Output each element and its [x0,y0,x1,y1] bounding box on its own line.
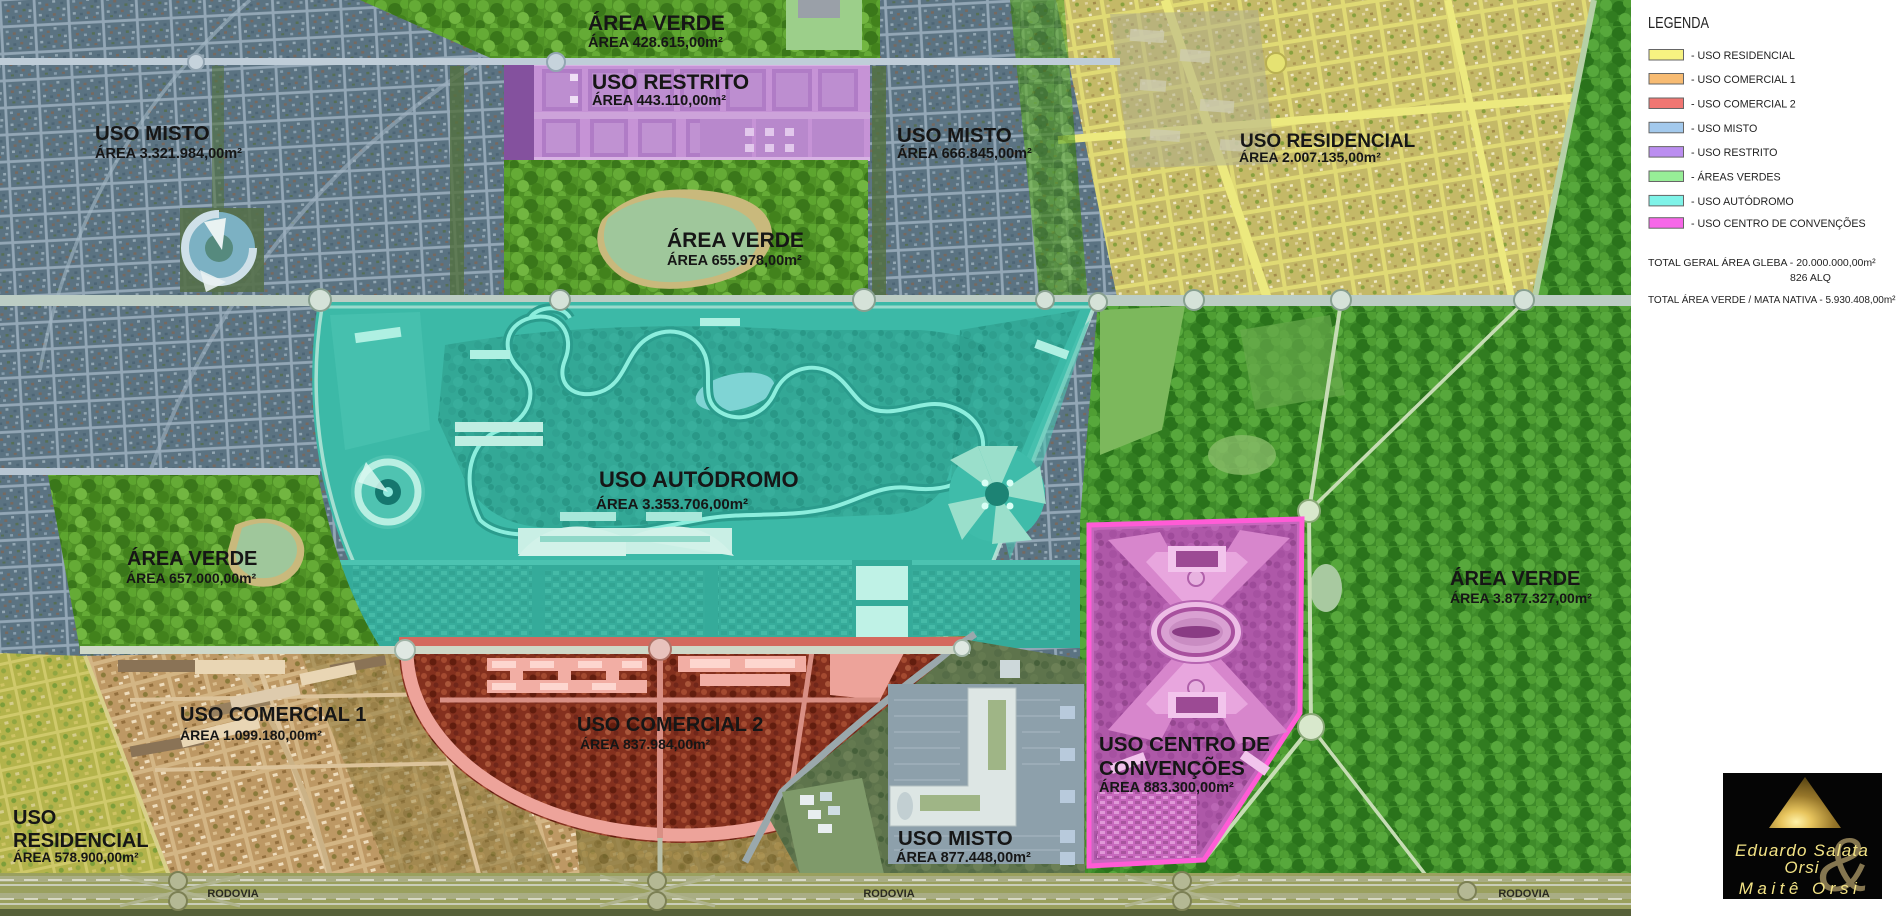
svg-text:ÁREA 837.984,00m²: ÁREA 837.984,00m² [580,736,711,752]
svg-text:ÁREA 657.000,00m²: ÁREA 657.000,00m² [126,570,257,586]
svg-text:ÁREA 3.353.706,00m²: ÁREA 3.353.706,00m² [596,496,748,513]
svg-text:USO MISTO: USO MISTO [95,122,210,145]
svg-text:USO COMERCIAL 2: USO COMERCIAL 2 [577,714,763,736]
svg-text:- USO COMERCIAL 1: - USO COMERCIAL 1 [1691,74,1796,86]
svg-text:USO AUTÓDROMO: USO AUTÓDROMO [599,467,799,492]
svg-text:LEGENDA: LEGENDA [1648,15,1710,32]
svg-text:- USO MISTO: - USO MISTO [1691,123,1757,135]
svg-text:ÁREA VERDE: ÁREA VERDE [127,547,257,570]
svg-text:ÁREA 666.845,00m²: ÁREA 666.845,00m² [897,145,1032,162]
svg-text:RODOVIA: RODOVIA [1498,888,1549,900]
svg-text:ÁREA 2.007.135,00m²: ÁREA 2.007.135,00m² [1239,149,1381,165]
svg-text:ÁREA VERDE: ÁREA VERDE [588,12,725,35]
svg-text:- USO RESTRITO: - USO RESTRITO [1691,147,1778,159]
svg-text:ÁREA 443.110,00m²: ÁREA 443.110,00m² [592,92,726,109]
svg-text:ÁREA 655.978,00m²: ÁREA 655.978,00m² [667,252,802,269]
svg-text:RODOVIA: RODOVIA [207,888,258,900]
svg-text:ÁREA 578.900,00m²: ÁREA 578.900,00m² [13,850,139,865]
svg-text:USO RESTRITO: USO RESTRITO [592,71,749,94]
svg-text:- USO CENTRO DE CONVENÇÕES: - USO CENTRO DE CONVENÇÕES [1691,217,1866,230]
svg-text:USO MISTO: USO MISTO [898,827,1013,850]
svg-text:- ÁREAS VERDES: - ÁREAS VERDES [1691,171,1781,184]
svg-text:Orsi: Orsi [1784,858,1819,877]
svg-text:CONVENÇÕES: CONVENÇÕES [1099,756,1245,780]
svg-text:- USO AUTÓDROMO: - USO AUTÓDROMO [1691,195,1794,208]
svg-text:ÁREA 428.615,00m²: ÁREA 428.615,00m² [588,34,723,51]
svg-text:USO: USO [13,807,56,829]
svg-text:USO COMERCIAL 1: USO COMERCIAL 1 [180,704,366,726]
svg-text:- USO RESIDENCIAL: - USO RESIDENCIAL [1691,50,1795,62]
svg-text:ÁREA VERDE: ÁREA VERDE [667,229,804,252]
svg-text:USO CENTRO DE: USO CENTRO DE [1099,733,1270,756]
svg-text:ÁREA 877.448,00m²: ÁREA 877.448,00m² [896,849,1031,866]
svg-text:ÁREA 1.099.180,00m²: ÁREA 1.099.180,00m² [180,727,322,743]
svg-text:ÁREA 883.300,00m²: ÁREA 883.300,00m² [1099,779,1234,796]
svg-text:Maitê Orsi: Maitê Orsi [1739,879,1861,898]
svg-text:- USO COMERCIAL 2: - USO COMERCIAL 2 [1691,99,1796,111]
svg-text:RODOVIA: RODOVIA [863,888,914,900]
svg-text:TOTAL GERAL ÁREA GLEBA - 20.00: TOTAL GERAL ÁREA GLEBA - 20.000.000,00m² [1648,256,1876,269]
svg-text:USO MISTO: USO MISTO [897,124,1012,147]
svg-text:ÁREA 3.321.984,00m²: ÁREA 3.321.984,00m² [95,145,242,162]
svg-text:RESIDENCIAL: RESIDENCIAL [13,830,149,852]
svg-text:ÁREA 3.877.327,00m²: ÁREA 3.877.327,00m² [1450,590,1592,606]
svg-text:826 ALQ: 826 ALQ [1790,272,1831,284]
svg-text:ÁREA VERDE: ÁREA VERDE [1450,567,1580,590]
svg-text:TOTAL ÁREA VERDE / MATA NATIVA: TOTAL ÁREA VERDE / MATA NATIVA - 5.930.4… [1648,293,1896,306]
